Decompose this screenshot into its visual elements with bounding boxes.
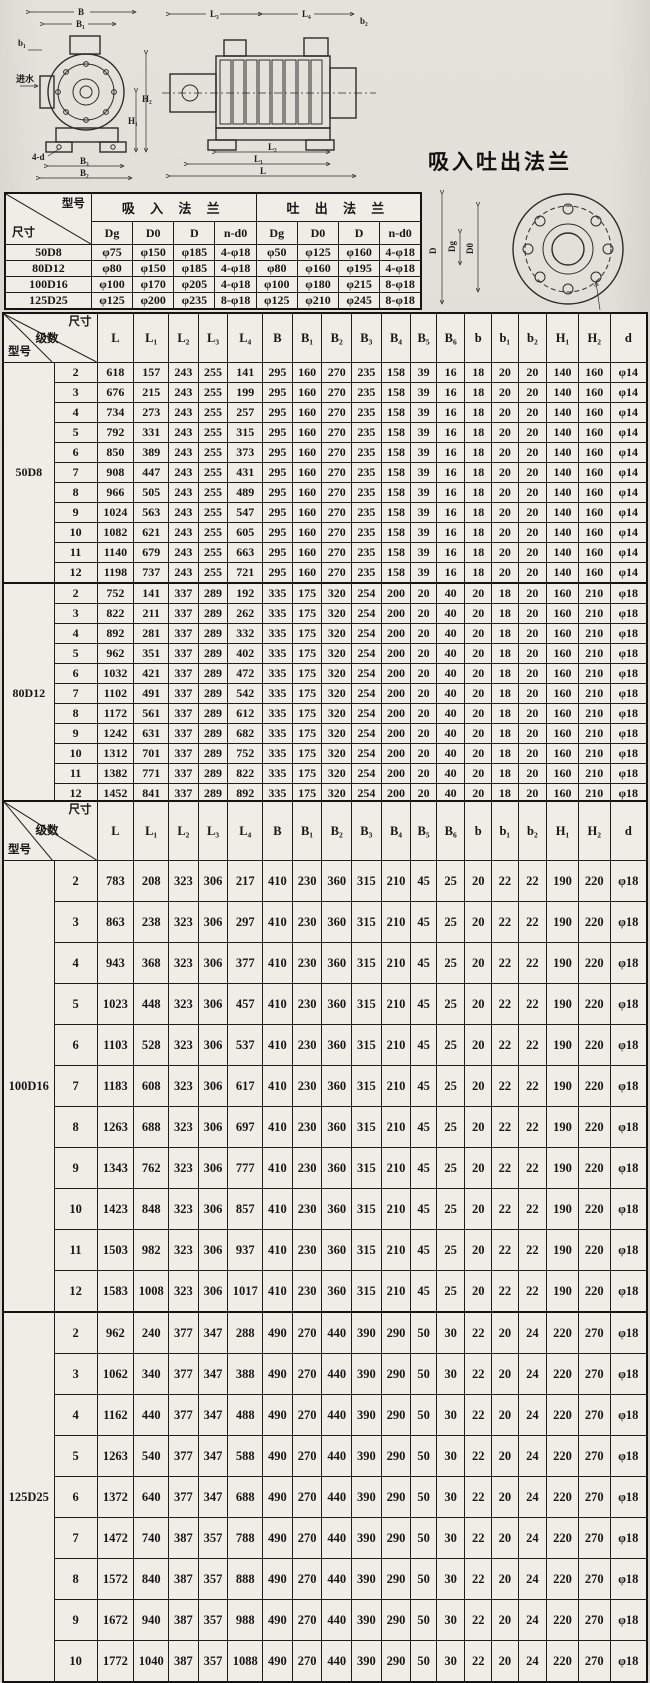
- dim-value-cell: 337: [169, 604, 199, 624]
- dim-label-b2: b₂: [360, 16, 368, 26]
- dim-value-cell: 320: [322, 604, 352, 624]
- stage-count-cell: 2: [54, 861, 97, 902]
- dim-value-cell: 734: [97, 403, 134, 423]
- dim-value-cell: 20: [518, 644, 547, 664]
- dim-value-cell: 140: [547, 423, 579, 443]
- flange-table-row: 100D16φ100φ170φ2054-φ18φ100φ180φ2158-φ18: [5, 277, 421, 293]
- flange-value-cell: φ205: [174, 277, 215, 293]
- flange-value-cell: φ180: [297, 277, 338, 293]
- dim-value-cell: 360: [322, 984, 352, 1025]
- column-header: B₆: [436, 801, 465, 861]
- dim-value-cell: 490: [263, 1354, 293, 1395]
- column-header: L₃: [198, 801, 228, 861]
- dim-value-cell: 410: [263, 861, 293, 902]
- dim-value-cell: 822: [97, 604, 134, 624]
- dim-value-cell: 351: [134, 644, 169, 664]
- dim-value-cell: 190: [547, 1189, 579, 1230]
- dim-value-cell: 335: [263, 624, 293, 644]
- dim-value-cell: 679: [134, 543, 169, 563]
- stage-count-cell: 10: [54, 744, 97, 764]
- dim-value-cell: 1772: [97, 1641, 134, 1683]
- dim-value-cell: 160: [292, 463, 322, 483]
- dim-value-cell: 360: [322, 1271, 352, 1313]
- dim-value-cell: 254: [352, 664, 382, 684]
- dim-value-cell: 20: [465, 861, 492, 902]
- dim-value-cell: 39: [411, 543, 437, 563]
- flange-value-cell: φ125: [256, 293, 297, 310]
- dim-value-cell: 542: [228, 684, 263, 704]
- column-header: B₄: [381, 313, 411, 363]
- dim-value-cell: φ18: [610, 1189, 647, 1230]
- dim-label-4d: 4-d: [32, 152, 45, 162]
- dim-value-cell: 20: [518, 563, 547, 584]
- dim-value-cell: 220: [547, 1518, 579, 1559]
- dim-value-cell: 377: [169, 1354, 199, 1395]
- dim-value-cell: 410: [263, 1107, 293, 1148]
- dim-value-cell: 440: [322, 1559, 352, 1600]
- dim-label-B: B: [78, 7, 84, 17]
- dim-value-cell: φ18: [610, 724, 647, 744]
- dim-value-cell: 220: [547, 1354, 579, 1395]
- column-header: L₂: [169, 801, 199, 861]
- dim-value-cell: 323: [169, 1066, 199, 1107]
- dim-value-cell: φ14: [610, 363, 647, 383]
- dim-value-cell: 20: [465, 684, 492, 704]
- dim-value-cell: 158: [381, 363, 411, 383]
- stage-count-cell: 3: [54, 902, 97, 943]
- dim-value-cell: φ18: [610, 1271, 647, 1313]
- dim-value-cell: 20: [411, 724, 437, 744]
- dim-value-cell: 22: [518, 1271, 547, 1313]
- dim-value-cell: 175: [292, 644, 322, 664]
- dim-value-cell: 158: [381, 503, 411, 523]
- dim-value-cell: 20: [465, 902, 492, 943]
- dim-value-cell: φ18: [610, 664, 647, 684]
- dim-value-cell: 160: [292, 483, 322, 503]
- flange-diagram-title: 吸入吐出法兰: [428, 146, 646, 176]
- dim-value-cell: 270: [292, 1518, 322, 1559]
- dim-value-cell: 158: [381, 463, 411, 483]
- dim-value-cell: 1263: [97, 1436, 134, 1477]
- column-header: D0: [297, 222, 338, 245]
- dim-table-row: 9167294038735798849027044039029050302220…: [3, 1600, 647, 1641]
- dim-table-row: 7110249133728954233517532025420020402018…: [3, 684, 647, 704]
- column-header: b₁: [492, 801, 519, 861]
- dim-value-cell: 210: [578, 764, 610, 784]
- dim-value-cell: φ18: [610, 1641, 647, 1683]
- dim-value-cell: 306: [198, 984, 228, 1025]
- dim-value-cell: 220: [578, 902, 610, 943]
- dim-value-cell: 270: [322, 363, 352, 383]
- dim-value-cell: 337: [169, 704, 199, 724]
- dim-value-cell: 50: [411, 1312, 437, 1354]
- dim-value-cell: 190: [547, 984, 579, 1025]
- column-header: L₄: [228, 313, 263, 363]
- dim-value-cell: 489: [228, 483, 263, 503]
- dim-value-cell: 306: [198, 861, 228, 902]
- dim-value-cell: φ14: [610, 463, 647, 483]
- dim-value-cell: 190: [547, 902, 579, 943]
- dim-value-cell: φ18: [610, 1066, 647, 1107]
- dim-value-cell: 20: [492, 523, 519, 543]
- model-label: 50D8: [3, 363, 54, 584]
- dim-value-cell: 30: [436, 1395, 465, 1436]
- dim-value-cell: 289: [198, 764, 228, 784]
- dim-value-cell: 255: [198, 443, 228, 463]
- dim-value-cell: 740: [134, 1518, 169, 1559]
- dim-value-cell: 387: [169, 1559, 199, 1600]
- column-header: B₅: [411, 801, 437, 861]
- dim-value-cell: 323: [169, 1230, 199, 1271]
- dim-value-cell: 220: [578, 1189, 610, 1230]
- dim-value-cell: 373: [228, 443, 263, 463]
- dim-value-cell: 30: [436, 1600, 465, 1641]
- dim-value-cell: 697: [228, 1107, 263, 1148]
- dim-value-cell: 20: [518, 443, 547, 463]
- dim-value-cell: 175: [292, 684, 322, 704]
- dim-value-cell: 50: [411, 1354, 437, 1395]
- dim-value-cell: 255: [198, 563, 228, 584]
- dim-value-cell: 25: [436, 1230, 465, 1271]
- column-header: B₄: [381, 801, 411, 861]
- dim-value-cell: 540: [134, 1436, 169, 1477]
- flange-value-cell: φ210: [297, 293, 338, 310]
- dim-value-cell: φ18: [610, 1107, 647, 1148]
- dim-value-cell: 254: [352, 764, 382, 784]
- dim-value-cell: 270: [578, 1518, 610, 1559]
- dim-value-cell: 788: [228, 1518, 263, 1559]
- model-label: 80D12: [3, 583, 54, 804]
- dim-value-cell: 20: [518, 684, 547, 704]
- dim-label-D0: D0: [465, 243, 475, 254]
- dim-value-cell: 335: [263, 704, 293, 724]
- dim-value-cell: 39: [411, 363, 437, 383]
- dim-value-cell: 1572: [97, 1559, 134, 1600]
- dim-table-row: 1211987372432557212951602702351583916182…: [3, 563, 647, 584]
- model-label: 100D16: [3, 861, 54, 1313]
- flange-corner-size: 尺寸: [12, 228, 35, 240]
- dim-value-cell: 243: [169, 403, 199, 423]
- dim-value-cell: 288: [228, 1312, 263, 1354]
- dim-value-cell: 18: [492, 724, 519, 744]
- dim-value-cell: 270: [578, 1436, 610, 1477]
- dim-value-cell: 235: [352, 443, 382, 463]
- dim-value-cell: 537: [228, 1025, 263, 1066]
- dim-value-cell: 20: [492, 463, 519, 483]
- dim-table-row: 50D8261815724325514129516027023515839161…: [3, 363, 647, 383]
- dim-value-cell: φ14: [610, 383, 647, 403]
- dim-value-cell: 25: [436, 1189, 465, 1230]
- dim-value-cell: 431: [228, 463, 263, 483]
- dim-value-cell: 22: [465, 1559, 492, 1600]
- dim-value-cell: 688: [134, 1107, 169, 1148]
- dim-value-cell: 20: [518, 764, 547, 784]
- dim-table-row: 5962351337289402335175320254200204020182…: [3, 644, 647, 664]
- dim-value-cell: 410: [263, 1230, 293, 1271]
- dim-value-cell: 140: [547, 483, 579, 503]
- dim-value-cell: 254: [352, 583, 382, 604]
- stage-count-cell: 4: [54, 943, 97, 984]
- dim-value-cell: 22: [518, 902, 547, 943]
- dim-value-cell: 20: [465, 1271, 492, 1313]
- column-header: D: [339, 222, 380, 245]
- dim-value-cell: 18: [465, 403, 492, 423]
- dim-value-cell: 1017: [228, 1271, 263, 1313]
- dim-table-row: 6110352832330653741023036031521045252022…: [3, 1025, 647, 1066]
- dim-value-cell: 16: [436, 443, 465, 463]
- dim-value-cell: 45: [411, 902, 437, 943]
- dim-value-cell: 22: [492, 1066, 519, 1107]
- dim-value-cell: 295: [263, 563, 293, 584]
- dim-value-cell: 608: [134, 1066, 169, 1107]
- dim-table-row: 1111406792432556632951602702351583916182…: [3, 543, 647, 563]
- dim-label-B1: B₁: [76, 19, 85, 29]
- dim-value-cell: 323: [169, 1189, 199, 1230]
- dim-value-cell: 220: [578, 1271, 610, 1313]
- dim-value-cell: 490: [263, 1518, 293, 1559]
- stage-count-cell: 10: [54, 1189, 97, 1230]
- flange-value-cell: φ100: [256, 277, 297, 293]
- dim-value-cell: 270: [292, 1641, 322, 1683]
- flange-value-cell: φ235: [174, 293, 215, 310]
- dim-table-2-corner: 型号 级数 尺寸: [3, 801, 97, 861]
- dim-value-cell: 410: [263, 1025, 293, 1066]
- flange-table-row: 50D8φ75φ150φ1854-φ18φ50φ125φ1604-φ18: [5, 245, 421, 261]
- dim-value-cell: 752: [97, 583, 134, 604]
- dim-value-cell: 238: [134, 902, 169, 943]
- dim-label-L2: L₂: [268, 142, 277, 152]
- dim-value-cell: 20: [518, 383, 547, 403]
- dim-value-cell: 270: [322, 543, 352, 563]
- dim-value-cell: 20: [492, 1600, 519, 1641]
- dim-value-cell: 158: [381, 523, 411, 543]
- dim-value-cell: 289: [198, 644, 228, 664]
- flange-value-cell: 4-φ18: [380, 245, 421, 261]
- dim-value-cell: 160: [292, 383, 322, 403]
- dim-value-cell: φ18: [610, 1395, 647, 1436]
- dim-value-cell: 20: [518, 724, 547, 744]
- dim-value-cell: 1023: [97, 984, 134, 1025]
- flange-value-cell: φ80: [91, 261, 132, 277]
- column-header: Dg: [91, 222, 132, 245]
- dim-value-cell: 270: [292, 1312, 322, 1354]
- column-header: B₅: [411, 313, 437, 363]
- stage-count-cell: 7: [54, 463, 97, 483]
- dim-value-cell: 18: [465, 443, 492, 463]
- dim-value-cell: 22: [492, 1107, 519, 1148]
- dim-value-cell: 20: [492, 363, 519, 383]
- dim-value-cell: 257: [228, 403, 263, 423]
- dim-value-cell: 16: [436, 563, 465, 584]
- dim-value-cell: 20: [492, 1436, 519, 1477]
- dim-value-cell: 289: [198, 684, 228, 704]
- dim-value-cell: φ18: [610, 684, 647, 704]
- stage-count-cell: 10: [54, 523, 97, 543]
- dim-value-cell: 347: [198, 1395, 228, 1436]
- dim-value-cell: φ18: [610, 583, 647, 604]
- corner-model-label: 型号: [8, 347, 31, 359]
- dim-value-cell: φ14: [610, 523, 647, 543]
- dim-value-cell: 20: [518, 403, 547, 423]
- dim-value-cell: 377: [169, 1436, 199, 1477]
- dim-value-cell: 160: [578, 523, 610, 543]
- dim-value-cell: 141: [228, 363, 263, 383]
- flange-corner-model: 型号: [62, 199, 85, 211]
- dim-value-cell: 140: [547, 563, 579, 584]
- dim-value-cell: 210: [578, 724, 610, 744]
- dim-table-2-body: 100D162783208323306217410230360315210452…: [3, 861, 647, 1683]
- dim-value-cell: 243: [169, 543, 199, 563]
- dim-value-cell: 337: [169, 664, 199, 684]
- flange-value-cell: φ75: [91, 245, 132, 261]
- dim-value-cell: 943: [97, 943, 134, 984]
- dim-value-cell: 22: [465, 1477, 492, 1518]
- dim-value-cell: 230: [292, 1107, 322, 1148]
- dim-value-cell: 20: [492, 1477, 519, 1518]
- dim-value-cell: 297: [228, 902, 263, 943]
- dim-table-row: 5102344832330645741023036031521045252022…: [3, 984, 647, 1025]
- dim-value-cell: 39: [411, 563, 437, 584]
- dim-value-cell: 160: [547, 744, 579, 764]
- dim-value-cell: 190: [547, 1148, 579, 1189]
- dim-value-cell: 290: [381, 1600, 411, 1641]
- dim-value-cell: φ18: [610, 1312, 647, 1354]
- corner-model-label: 型号: [8, 845, 31, 857]
- dim-value-cell: 20: [518, 483, 547, 503]
- dim-value-cell: 20: [465, 764, 492, 784]
- dim-label-L3: L₃: [210, 9, 219, 19]
- dim-value-cell: φ14: [610, 403, 647, 423]
- dim-value-cell: 270: [578, 1641, 610, 1683]
- dim-value-cell: 175: [292, 744, 322, 764]
- dim-value-cell: 25: [436, 861, 465, 902]
- dim-value-cell: 1382: [97, 764, 134, 784]
- stage-count-cell: 5: [54, 1436, 97, 1477]
- dim-table-row: 1017721040387357108849027044039029050302…: [3, 1641, 647, 1683]
- dim-value-cell: 388: [228, 1354, 263, 1395]
- dim-value-cell: 30: [436, 1518, 465, 1559]
- dim-value-cell: 192: [228, 583, 263, 604]
- dim-label-H1: H₁: [128, 116, 138, 126]
- dim-value-cell: 20: [518, 583, 547, 604]
- dim-value-cell: 290: [381, 1477, 411, 1518]
- dim-value-cell: φ18: [610, 1600, 647, 1641]
- dim-table-1-corner: 型号 级数 尺寸: [3, 313, 97, 363]
- dim-value-cell: 255: [198, 503, 228, 523]
- dim-value-cell: 45: [411, 1189, 437, 1230]
- dim-value-cell: 22: [465, 1641, 492, 1683]
- dim-value-cell: 39: [411, 523, 437, 543]
- dim-value-cell: 45: [411, 1230, 437, 1271]
- dim-value-cell: 210: [578, 644, 610, 664]
- dim-value-cell: 235: [352, 403, 382, 423]
- dim-value-cell: 220: [578, 943, 610, 984]
- dim-value-cell: 25: [436, 1107, 465, 1148]
- dim-value-cell: 160: [292, 363, 322, 383]
- dim-value-cell: 676: [97, 383, 134, 403]
- dim-value-cell: 410: [263, 1189, 293, 1230]
- dim-value-cell: 16: [436, 423, 465, 443]
- side-view-drawing: L₃ L₄ b₂ L₂ L₁ L: [158, 2, 380, 184]
- dim-value-cell: 254: [352, 704, 382, 724]
- dim-value-cell: 390: [352, 1600, 382, 1641]
- front-view-drawing: B B₁ b₁ 进水 H₁ H₂ 4-d B₃: [14, 2, 154, 184]
- dim-value-cell: 640: [134, 1477, 169, 1518]
- dim-value-cell: 20: [518, 523, 547, 543]
- dim-value-cell: 30: [436, 1641, 465, 1683]
- dim-value-cell: 20: [411, 604, 437, 624]
- dim-value-cell: 335: [263, 644, 293, 664]
- stage-count-cell: 6: [54, 443, 97, 463]
- corner-size-label: 尺寸: [69, 317, 92, 329]
- dim-value-cell: 270: [292, 1600, 322, 1641]
- dim-value-cell: 490: [263, 1559, 293, 1600]
- dim-value-cell: 220: [578, 1148, 610, 1189]
- dim-table-row: 3676215243255199295160270235158391618202…: [3, 383, 647, 403]
- dim-value-cell: 160: [578, 403, 610, 423]
- flange-table-row: 80D12φ80φ150φ1854-φ18φ80φ160φ1954-φ18: [5, 261, 421, 277]
- dim-value-cell: 20: [465, 1230, 492, 1271]
- dim-value-cell: 210: [381, 1148, 411, 1189]
- dim-value-cell: 1263: [97, 1107, 134, 1148]
- dim-value-cell: 792: [97, 423, 134, 443]
- dim-value-cell: 1102: [97, 684, 134, 704]
- dim-value-cell: 40: [436, 664, 465, 684]
- dim-value-cell: 306: [198, 1025, 228, 1066]
- dim-value-cell: φ18: [610, 861, 647, 902]
- column-header: B: [263, 801, 293, 861]
- dim-value-cell: 1040: [134, 1641, 169, 1683]
- dim-value-cell: 20: [411, 704, 437, 724]
- dim-value-cell: 20: [518, 744, 547, 764]
- dim-value-cell: 50: [411, 1436, 437, 1477]
- dim-value-cell: 20: [492, 423, 519, 443]
- flange-table: 型号 尺寸 吸 入 法 兰 吐 出 法 兰 DgD0Dn-d0DgD0Dn-d0…: [4, 192, 422, 310]
- dim-value-cell: φ18: [610, 984, 647, 1025]
- dim-value-cell: 160: [292, 503, 322, 523]
- dim-value-cell: 254: [352, 684, 382, 704]
- column-header: b₁: [492, 313, 519, 363]
- dim-value-cell: 20: [411, 583, 437, 604]
- dim-value-cell: 306: [198, 1066, 228, 1107]
- flange-value-cell: 8-φ18: [215, 293, 256, 310]
- dim-value-cell: 20: [465, 744, 492, 764]
- dim-value-cell: 982: [134, 1230, 169, 1271]
- dim-value-cell: 1032: [97, 664, 134, 684]
- dim-value-cell: 160: [292, 543, 322, 563]
- dim-table-row: 9134376232330677741023036031521045252022…: [3, 1148, 647, 1189]
- dim-value-cell: 528: [134, 1025, 169, 1066]
- dim-value-cell: 402: [228, 644, 263, 664]
- dim-value-cell: 243: [169, 523, 199, 543]
- dim-value-cell: 140: [547, 383, 579, 403]
- dim-value-cell: φ18: [610, 624, 647, 644]
- dim-label-B3: B₃: [80, 156, 89, 166]
- dim-value-cell: 45: [411, 1148, 437, 1189]
- dim-value-cell: 18: [465, 563, 492, 584]
- dim-value-cell: φ18: [610, 1230, 647, 1271]
- dim-value-cell: 175: [292, 604, 322, 624]
- dim-value-cell: 390: [352, 1477, 382, 1518]
- dim-value-cell: 440: [322, 1518, 352, 1559]
- dim-value-cell: 22: [465, 1354, 492, 1395]
- dim-value-cell: 605: [228, 523, 263, 543]
- dim-value-cell: 22: [492, 861, 519, 902]
- dim-value-cell: 390: [352, 1312, 382, 1354]
- dim-value-cell: 200: [381, 624, 411, 644]
- dim-value-cell: 20: [518, 503, 547, 523]
- column-header: H₂: [578, 801, 610, 861]
